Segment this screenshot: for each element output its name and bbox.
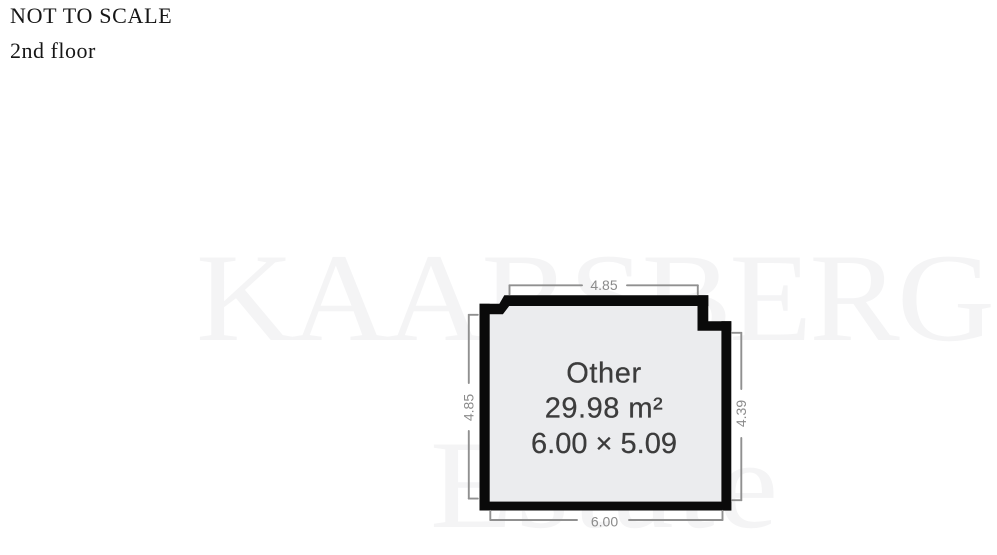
svg-text:6.00 × 5.09: 6.00 × 5.09 xyxy=(531,428,677,460)
svg-text:4.85: 4.85 xyxy=(590,277,617,293)
svg-text:29.98 m²: 29.98 m² xyxy=(545,393,663,425)
svg-text:Other: Other xyxy=(566,358,642,390)
svg-text:4.39: 4.39 xyxy=(733,400,749,427)
svg-text:6.00: 6.00 xyxy=(591,514,618,530)
svg-text:4.85: 4.85 xyxy=(461,394,477,421)
